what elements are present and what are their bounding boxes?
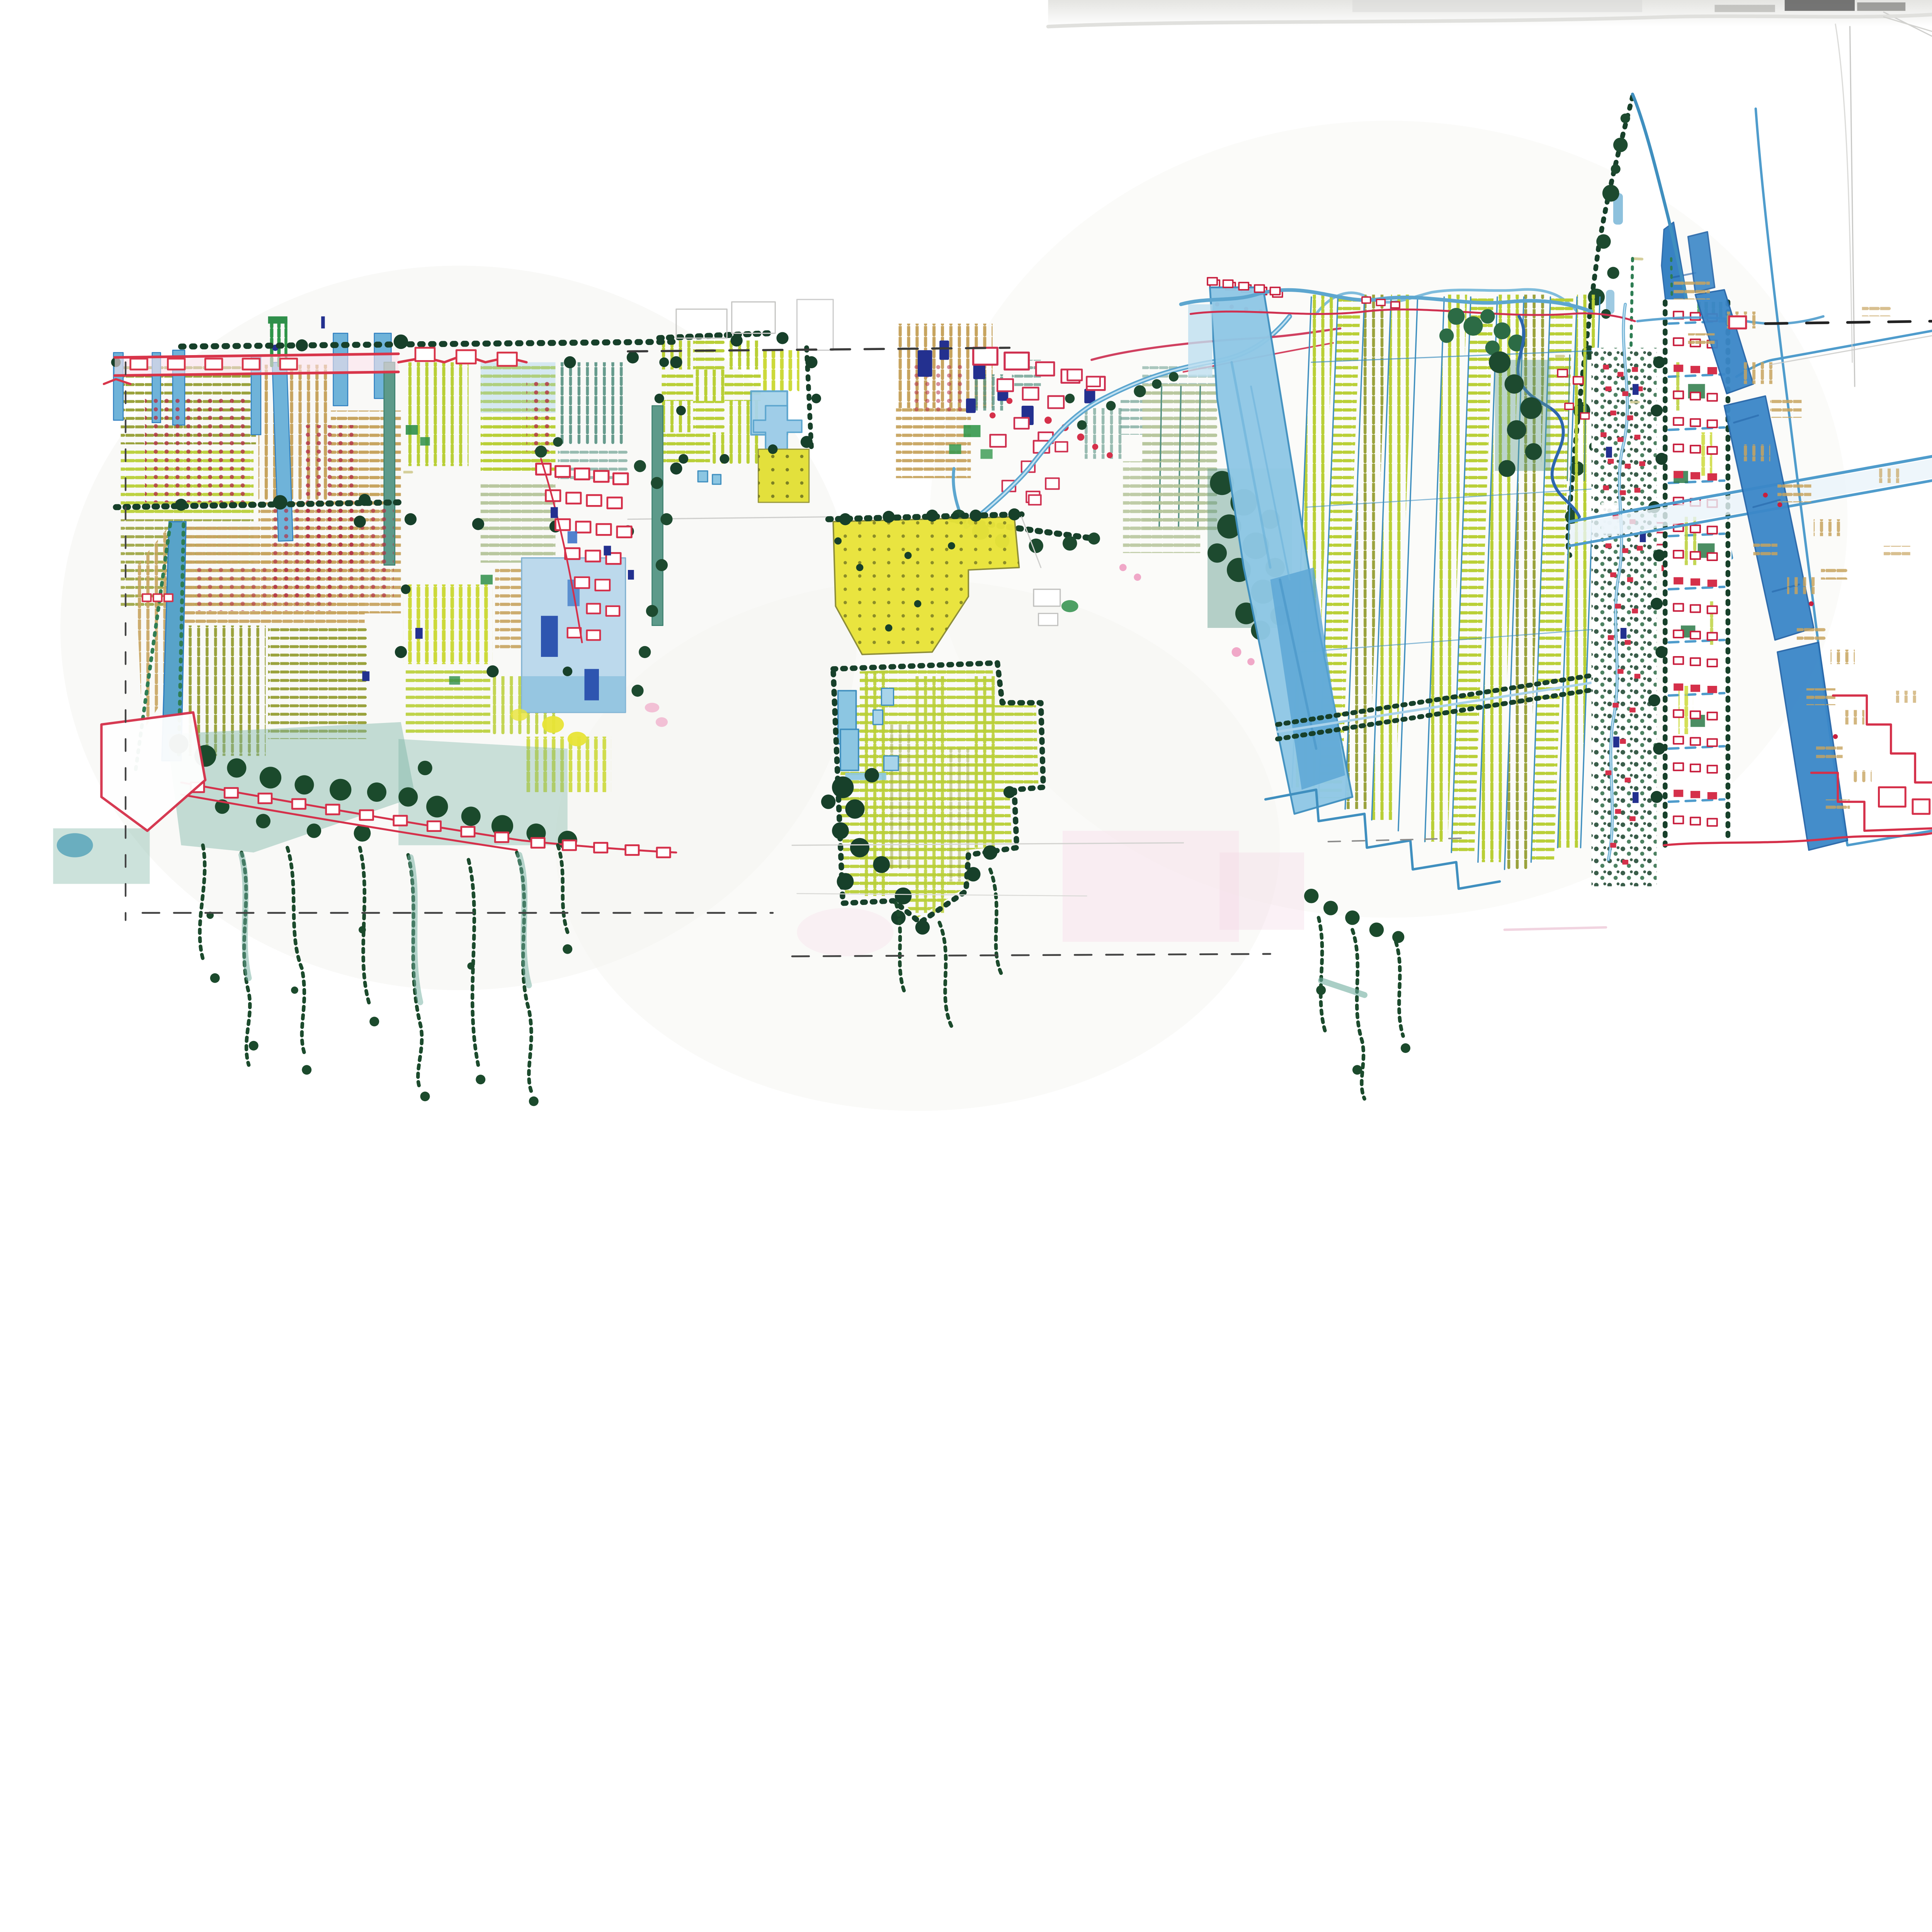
2 <box>1558 369 1567 377</box>
map-shape <box>676 406 686 415</box>
map-shape <box>1087 377 1100 386</box>
map-shape <box>1831 650 1855 664</box>
map-shape <box>354 515 366 527</box>
3 <box>1708 686 1717 693</box>
map-shape <box>655 394 664 403</box>
map-shape <box>1605 386 1612 391</box>
map-shape <box>670 463 682 474</box>
map-shape <box>1207 543 1227 563</box>
map-shape <box>1629 707 1636 713</box>
map-shape <box>1323 901 1338 915</box>
map-shape <box>542 716 564 733</box>
map-shape <box>915 920 930 935</box>
map-shape <box>656 717 668 727</box>
5 <box>280 359 297 369</box>
3 <box>1673 790 1683 797</box>
map-shape <box>1106 401 1116 411</box>
4 <box>607 498 622 509</box>
map-shape <box>1814 519 1843 536</box>
3 <box>1673 710 1683 718</box>
map-shape <box>1625 464 1631 469</box>
5 <box>1239 282 1248 290</box>
map-shape <box>403 469 478 580</box>
map-shape <box>839 513 851 525</box>
2 <box>1046 478 1059 489</box>
map-shape <box>884 756 899 770</box>
map-shape <box>1612 703 1619 708</box>
map-shape <box>1029 495 1041 505</box>
map-shape <box>710 432 761 464</box>
map-shape <box>1169 372 1179 382</box>
map-shape <box>551 507 558 518</box>
10 <box>259 794 272 803</box>
map-shape <box>291 986 298 994</box>
3 <box>415 348 435 361</box>
map-shape <box>768 444 778 454</box>
3 <box>143 594 151 602</box>
2 <box>973 348 998 365</box>
map-shape <box>1787 577 1818 594</box>
map-shape <box>645 703 660 713</box>
3 <box>1690 419 1700 426</box>
map-shape <box>660 513 672 525</box>
3 <box>1708 367 1717 374</box>
3 <box>1708 580 1717 587</box>
map-shape <box>426 796 448 817</box>
map-shape <box>486 665 498 677</box>
map-shape <box>406 425 418 435</box>
2 <box>1565 403 1573 410</box>
map-shape <box>467 963 474 970</box>
map-shape <box>527 382 551 452</box>
5 <box>594 843 607 852</box>
3 <box>1690 313 1700 320</box>
map-shape <box>302 1065 311 1075</box>
map-shape <box>367 782 386 802</box>
map-shape <box>420 1092 430 1101</box>
3 <box>997 379 1013 391</box>
3 <box>1391 302 1400 308</box>
map-shape <box>1316 985 1326 995</box>
map-shape <box>1607 267 1619 279</box>
map-shape <box>1797 626 1826 643</box>
map-shape <box>1088 532 1100 544</box>
map-shape <box>1610 843 1616 848</box>
map-shape <box>1448 308 1465 325</box>
map-shape <box>1777 483 1811 502</box>
3 <box>1673 657 1683 664</box>
3 <box>1708 792 1717 799</box>
3 <box>1708 394 1717 401</box>
map-shape <box>1634 488 1641 493</box>
map-shape <box>939 340 949 360</box>
map-shape <box>273 495 287 510</box>
map-shape <box>834 537 842 545</box>
map-shape <box>990 412 996 418</box>
map-shape <box>659 357 669 367</box>
3 <box>1708 473 1717 481</box>
map-shape <box>1850 770 1872 782</box>
map-shape <box>1061 600 1078 612</box>
3 <box>1690 658 1700 665</box>
3 <box>1023 388 1039 400</box>
3 <box>1690 631 1700 639</box>
map-shape <box>1608 459 1614 464</box>
3 <box>1708 819 1717 826</box>
map-shape <box>850 838 869 857</box>
map-shape <box>1639 461 1645 466</box>
map-shape <box>472 518 484 530</box>
map-shape <box>1063 536 1077 551</box>
map-shape <box>1874 469 1903 483</box>
map-shape <box>1615 604 1621 609</box>
3 <box>1690 366 1700 373</box>
map-shape <box>1520 397 1542 419</box>
5 <box>657 848 670 857</box>
map-shape <box>296 339 308 351</box>
2 <box>606 606 619 616</box>
map-shape <box>873 856 890 873</box>
3 <box>1673 418 1683 425</box>
map-shape <box>713 474 721 484</box>
map-shape <box>1077 434 1085 441</box>
3 <box>1673 763 1683 770</box>
map-shape <box>1610 572 1616 577</box>
map-shape <box>175 499 187 511</box>
10 <box>326 805 339 815</box>
map-shape <box>541 616 558 657</box>
map-shape <box>966 398 976 413</box>
2 <box>587 604 600 614</box>
map-shape <box>1055 442 1067 452</box>
map-shape <box>256 814 271 828</box>
map-shape <box>268 316 287 324</box>
map-shape <box>1219 852 1304 930</box>
map-shape <box>1188 304 1213 377</box>
map-shape <box>1739 362 1775 384</box>
map-shape <box>604 546 611 556</box>
map-shape <box>1632 609 1638 614</box>
map-shape <box>401 585 411 594</box>
3 <box>1690 818 1700 825</box>
map-shape <box>1613 138 1628 152</box>
5 <box>626 845 639 855</box>
map-shape <box>268 626 367 739</box>
3 <box>1690 552 1700 559</box>
map-shape <box>395 646 407 658</box>
map-shape <box>896 408 971 478</box>
map-shape <box>359 926 366 934</box>
4 <box>617 527 632 537</box>
map-shape <box>568 732 587 747</box>
map-shape <box>651 477 663 489</box>
map-shape <box>948 542 955 549</box>
map-shape <box>1673 280 1710 299</box>
10 <box>394 816 407 825</box>
map-shape <box>652 406 663 626</box>
map-shape <box>1627 415 1633 420</box>
map-shape <box>969 510 981 522</box>
map-shape <box>662 401 693 432</box>
map-shape <box>865 768 879 783</box>
map-shape <box>1622 860 1628 865</box>
map-shape <box>1809 601 1814 606</box>
map-shape <box>449 676 460 685</box>
map-shape <box>966 867 981 882</box>
10 <box>495 832 508 842</box>
map-shape <box>797 908 894 956</box>
3 <box>1690 578 1700 586</box>
map-shape <box>856 564 864 571</box>
3 <box>498 353 517 366</box>
map-shape <box>926 510 938 522</box>
map-shape <box>210 973 220 983</box>
map-shape <box>889 724 915 869</box>
map-shape <box>832 822 849 839</box>
map-shape <box>1610 411 1616 416</box>
map-shape <box>1637 546 1643 551</box>
3 <box>1708 447 1717 454</box>
map-shape <box>53 828 150 884</box>
map-shape <box>1077 420 1087 430</box>
map-shape <box>145 398 247 502</box>
map-shape <box>481 575 493 585</box>
map-shape <box>1605 543 1612 548</box>
map-shape <box>1600 432 1607 437</box>
map-shape <box>1879 787 1906 807</box>
map-shape <box>1602 185 1619 202</box>
map-shape <box>776 332 788 344</box>
map-shape <box>403 362 469 466</box>
map-shape <box>1770 398 1801 418</box>
map-shape <box>964 425 981 437</box>
3 <box>1673 338 1683 345</box>
map-shape <box>1608 635 1614 640</box>
map-shape <box>1063 831 1239 942</box>
3 <box>1377 299 1385 306</box>
map-shape <box>1651 598 1663 610</box>
map-shape <box>1480 309 1495 324</box>
map-shape <box>1622 548 1628 553</box>
3 <box>1673 630 1683 638</box>
5 <box>575 469 590 480</box>
map-shape <box>918 350 932 377</box>
map-shape <box>1821 565 1848 580</box>
map-shape <box>693 369 724 401</box>
map-shape <box>1651 405 1663 417</box>
map-shape <box>1633 384 1639 395</box>
map-shape <box>1065 394 1075 403</box>
map-shape <box>759 350 799 391</box>
3 <box>1690 711 1700 719</box>
2 <box>990 435 1006 447</box>
map-shape <box>724 340 761 369</box>
3 <box>1362 297 1371 303</box>
3 <box>1673 444 1683 452</box>
map-shape <box>1896 691 1917 703</box>
map-shape <box>845 799 865 819</box>
map-shape <box>731 335 743 347</box>
5 <box>243 359 260 369</box>
map-shape <box>1392 931 1404 943</box>
map-shape <box>821 794 836 809</box>
map-shape <box>1688 333 1715 348</box>
map-shape <box>1648 694 1660 706</box>
map-shape <box>398 787 418 807</box>
map-shape <box>1634 435 1641 440</box>
map-shape <box>1625 778 1631 783</box>
map-shape <box>1653 356 1665 368</box>
map-shape <box>330 779 351 801</box>
map-shape <box>1507 420 1526 440</box>
map-shape <box>1753 541 1778 556</box>
3 <box>1673 604 1683 611</box>
map-shape <box>1107 452 1113 458</box>
map-shape <box>1621 628 1627 639</box>
10 <box>292 799 305 809</box>
map-shape <box>656 559 668 571</box>
map-shape <box>1621 114 1630 123</box>
10 <box>461 827 474 837</box>
map-shape <box>420 437 430 446</box>
map-shape <box>563 944 572 954</box>
map-shape <box>895 888 912 905</box>
map-shape <box>249 1041 259 1051</box>
map-shape <box>805 356 817 368</box>
map-shape <box>415 628 423 639</box>
10 <box>360 810 373 820</box>
map-shape <box>1603 365 1609 370</box>
map-shape <box>1632 367 1638 372</box>
map-shape <box>639 646 651 658</box>
map-shape <box>1034 589 1060 606</box>
5 <box>1207 278 1217 285</box>
map-shape <box>1620 490 1626 495</box>
map-shape <box>840 730 859 770</box>
map-shape <box>1617 669 1624 674</box>
3 <box>1690 738 1700 745</box>
map-shape <box>634 460 646 472</box>
map-shape <box>1627 577 1633 582</box>
3 <box>456 350 476 363</box>
map-shape <box>1489 351 1510 373</box>
map-shape <box>558 362 623 445</box>
map-shape <box>670 356 682 368</box>
3 <box>1690 685 1700 692</box>
map-shape <box>1068 369 1082 380</box>
3 <box>1673 391 1683 399</box>
5 <box>131 359 148 369</box>
3 <box>1708 527 1717 534</box>
map-shape <box>1596 234 1611 249</box>
3 <box>1673 736 1683 744</box>
map-shape <box>811 394 821 403</box>
map-shape <box>1615 809 1621 814</box>
map-shape <box>1884 546 1910 561</box>
3 <box>1690 393 1700 400</box>
map-shape <box>720 454 730 464</box>
3 <box>1690 764 1700 772</box>
map-shape <box>1763 493 1768 498</box>
map-shape <box>1352 1065 1362 1075</box>
3 <box>1708 553 1717 560</box>
3 <box>1690 525 1700 532</box>
map-shape <box>1715 5 1775 12</box>
2 <box>1573 377 1583 384</box>
map-shape <box>693 401 724 432</box>
5 <box>594 471 609 482</box>
map-shape <box>1494 322 1511 339</box>
map-shape <box>553 437 563 447</box>
map-shape <box>1633 792 1639 803</box>
3 <box>1708 713 1717 720</box>
2 <box>1014 418 1029 429</box>
map-shape <box>461 807 481 826</box>
map-shape <box>885 624 893 632</box>
map-shape <box>628 570 634 580</box>
map-shape <box>1152 379 1162 389</box>
3 <box>1708 765 1717 773</box>
map-shape <box>1629 816 1636 821</box>
map-shape <box>1119 564 1127 571</box>
map-shape <box>981 449 993 459</box>
map-shape <box>1806 688 1835 705</box>
map-shape <box>1464 316 1483 336</box>
map-shape <box>1620 739 1626 744</box>
map-shape <box>405 513 417 525</box>
map-shape <box>1247 658 1255 665</box>
map-shape <box>295 775 314 794</box>
3 <box>1708 420 1717 428</box>
map-shape <box>227 759 247 778</box>
map-shape <box>1634 674 1641 679</box>
4 <box>566 493 581 503</box>
map-shape <box>369 1017 379 1026</box>
map-shape <box>698 471 707 482</box>
map-shape <box>1495 360 1551 471</box>
map-shape <box>563 667 572 676</box>
3 <box>1690 791 1700 798</box>
2 <box>587 630 600 640</box>
map-shape <box>1044 417 1052 424</box>
map-shape <box>1862 302 1891 316</box>
map-shape <box>1352 0 1642 12</box>
map-shape <box>1603 485 1609 490</box>
2 <box>1005 353 1029 370</box>
3 <box>1708 659 1717 667</box>
map-shape <box>1617 437 1624 442</box>
5 <box>205 359 222 369</box>
map-shape <box>1605 770 1612 776</box>
map-shape <box>662 369 693 401</box>
hand-drawn-landuse-map: Hand-drawn land-use map (marker and wate… <box>0 0 1932 1219</box>
map-shape <box>359 494 371 506</box>
2 <box>575 577 590 588</box>
map-shape <box>1729 316 1746 328</box>
10 <box>427 821 440 831</box>
map-shape <box>1613 736 1619 747</box>
map-shape <box>1840 710 1865 725</box>
map-shape <box>1525 443 1542 460</box>
map-shape <box>1857 2 1905 11</box>
map-shape <box>1655 646 1667 658</box>
4 <box>576 522 591 532</box>
map-shape <box>881 688 893 705</box>
map-shape <box>193 565 336 611</box>
map-shape <box>1816 746 1843 761</box>
map-shape <box>1653 743 1665 755</box>
map-shape <box>627 351 639 363</box>
